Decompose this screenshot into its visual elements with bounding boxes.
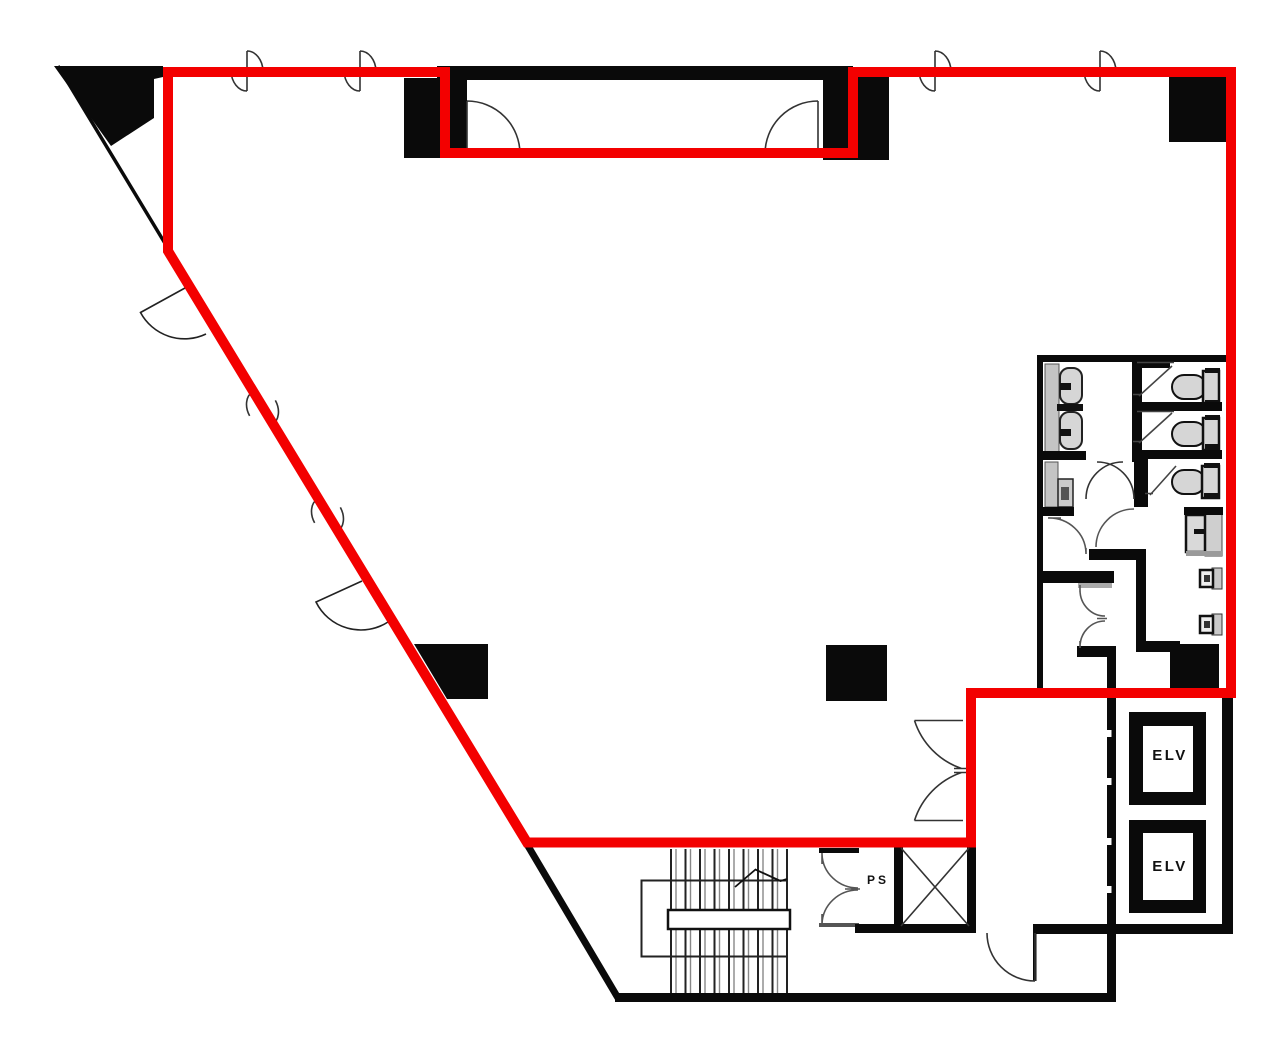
svg-text:ELV: ELV <box>1152 747 1188 764</box>
svg-text:ELV: ELV <box>1152 858 1188 875</box>
svg-text:PS: PS <box>867 873 889 887</box>
